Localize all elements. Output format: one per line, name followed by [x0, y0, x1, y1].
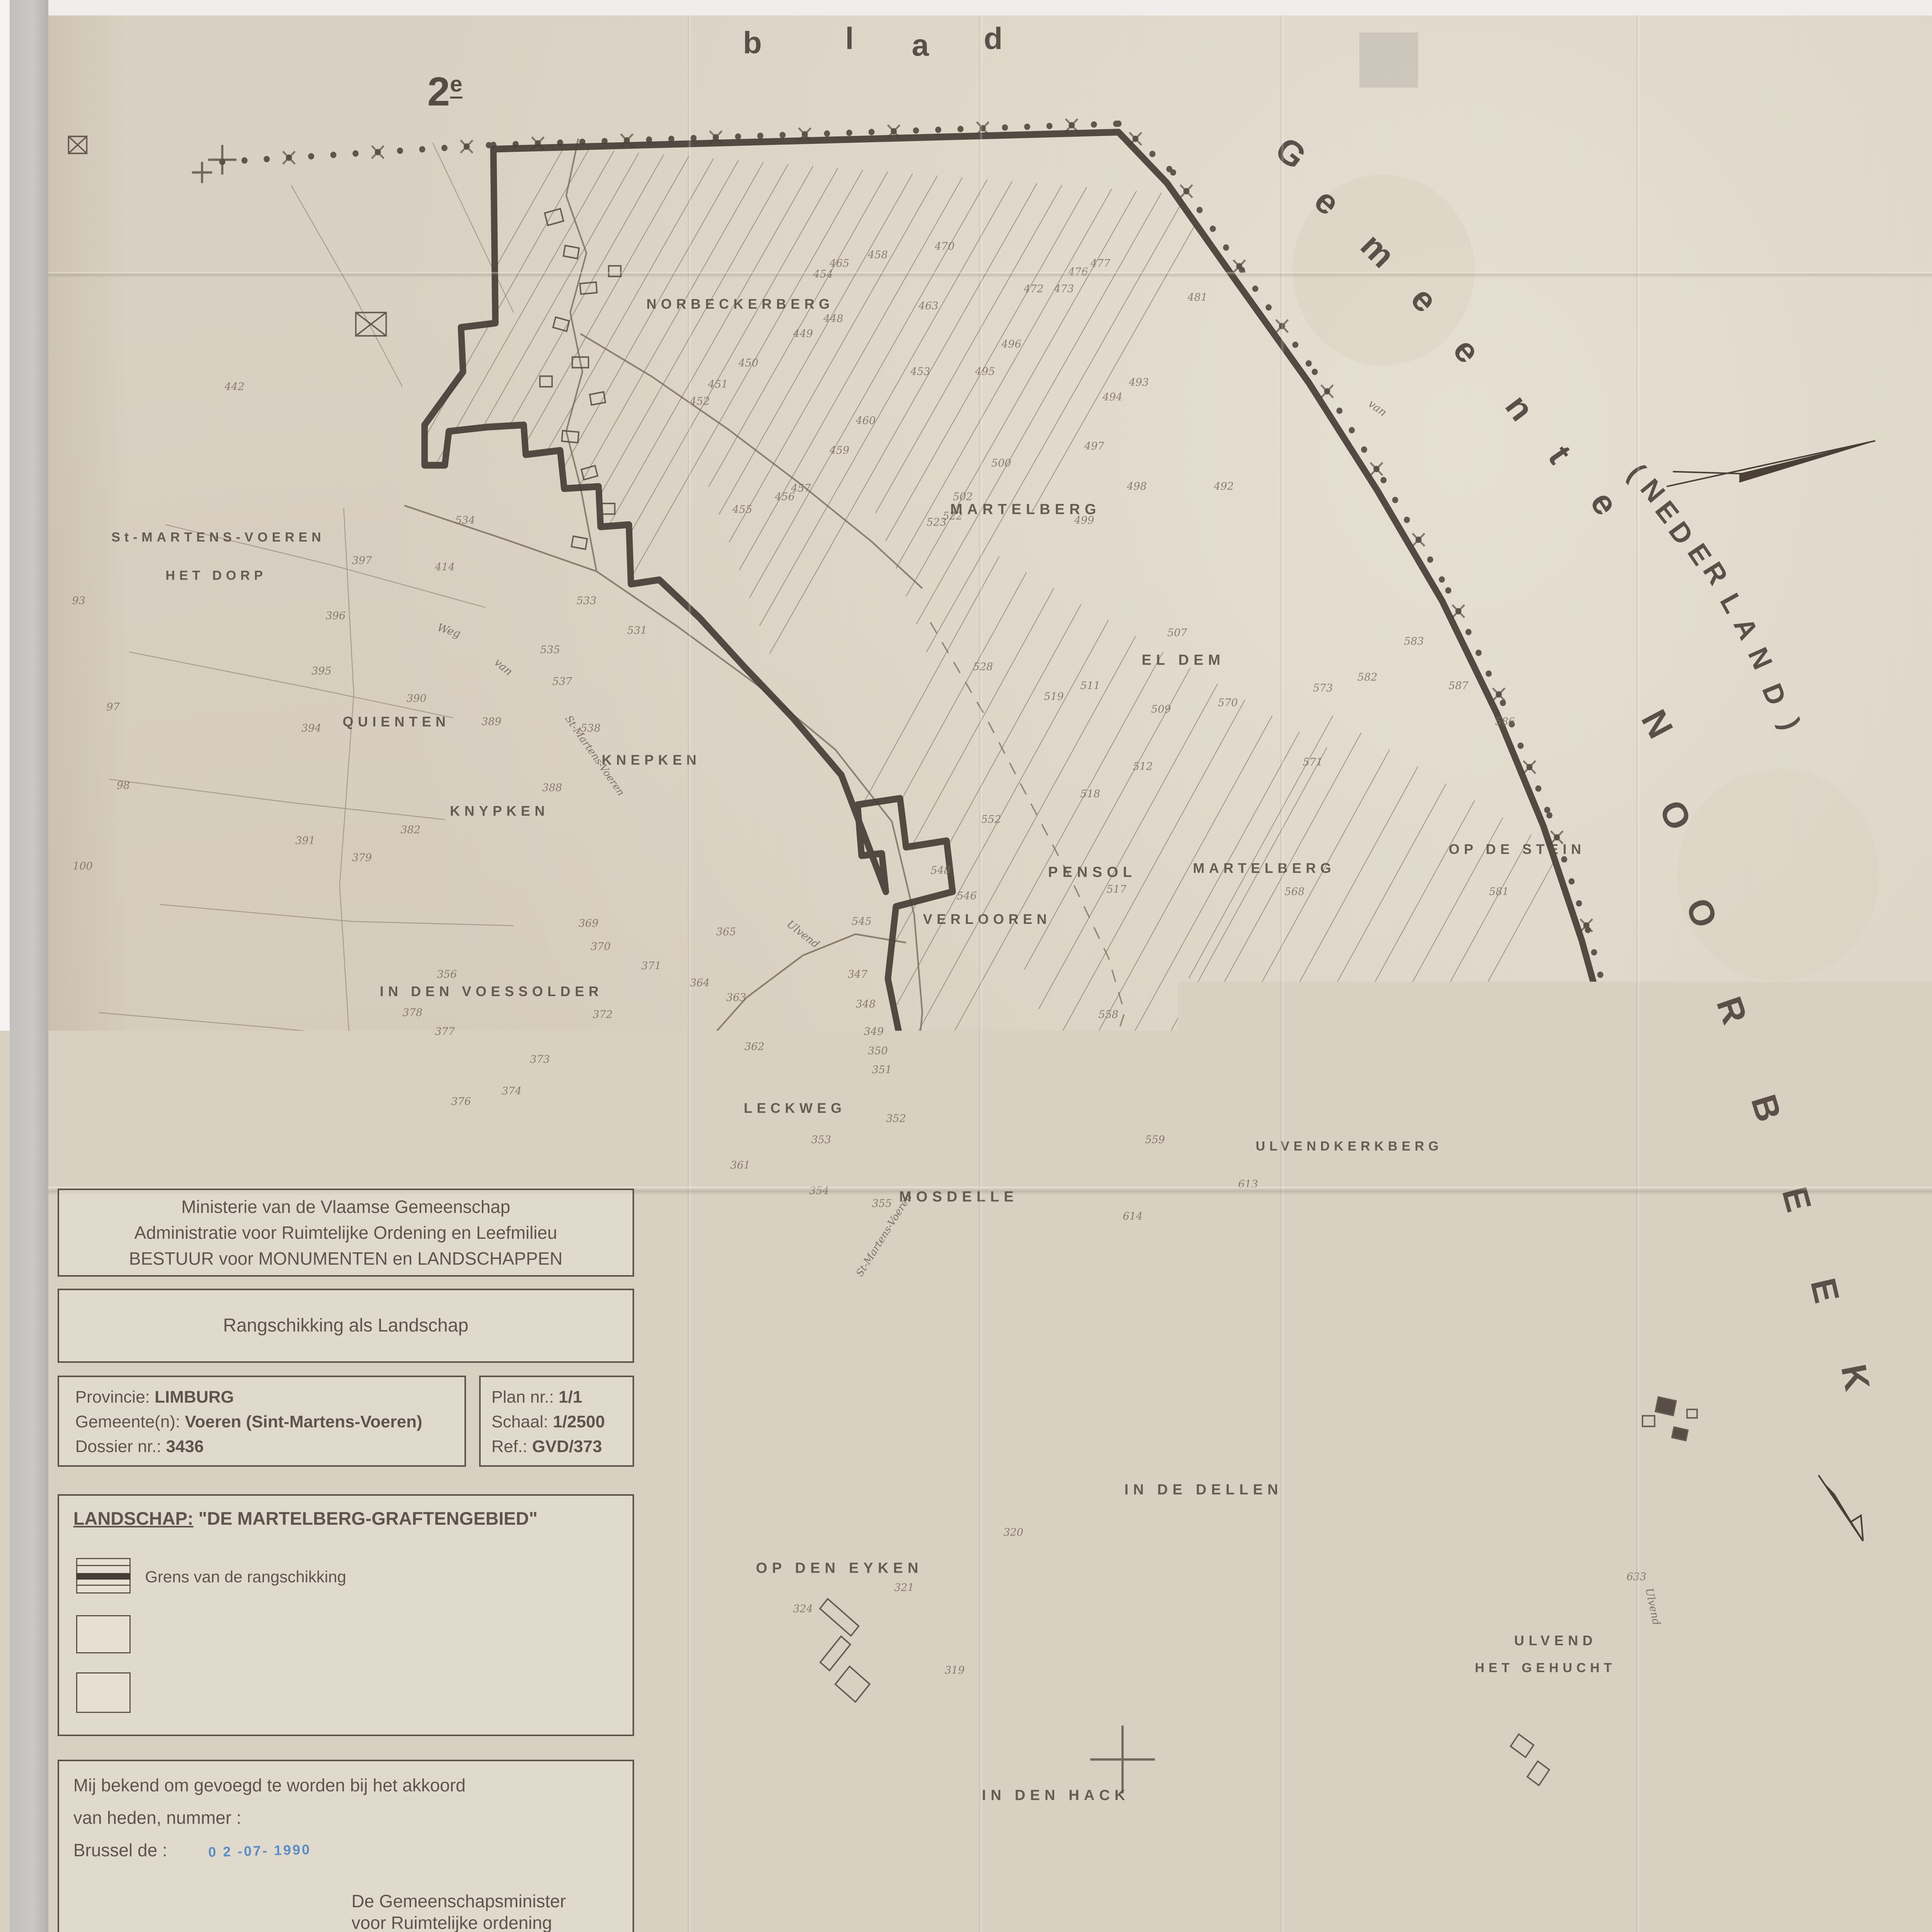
parcel-number: 100	[73, 860, 93, 872]
parcel-number: 630	[1436, 1609, 1456, 1621]
place-name-label: IN DEN VOESSOLDER	[380, 983, 603, 1000]
neighbor-sheet-ordinal-bottom: 1e	[1418, 1830, 1455, 1876]
place-name-label: ULVEND	[1514, 1633, 1597, 1649]
parcel-number: 496	[1002, 338, 1022, 350]
scan-edge-left	[10, 0, 48, 1932]
parcel-number: 546	[957, 890, 977, 902]
minister-line1: De Gemeenschapsminister	[352, 1891, 566, 1912]
parcel-number: 378	[403, 1007, 423, 1019]
parcel-number: 562	[1250, 1039, 1270, 1051]
parcel-number: 351	[872, 1064, 892, 1076]
north-arrow-pen-mark	[1667, 441, 1875, 486]
parcel-number: 627	[1454, 1539, 1475, 1551]
parcel-number: 629	[1471, 1605, 1491, 1617]
parcel-number: 545	[852, 915, 872, 927]
parcel-number: 593	[1598, 1026, 1618, 1038]
parcel-number: 587	[1449, 680, 1469, 692]
empty-symbol-swatch	[76, 1615, 131, 1653]
place-name-label: SCANTEN	[1458, 1030, 1556, 1046]
legend-province-box: Provincie: LIMBURG Gemeente(n): Voeren (…	[58, 1376, 466, 1467]
parcel-number: 534	[455, 514, 475, 526]
parcel-number: 356	[437, 968, 457, 980]
parcel-number: 632	[1485, 1698, 1505, 1710]
parcel-number: 507	[1167, 627, 1187, 639]
neighbor-sheet-letter: a	[912, 27, 929, 63]
parcel-number: 453	[910, 366, 930, 378]
parcel-number: 552	[981, 814, 1001, 826]
parcel-number: 452	[690, 396, 710, 408]
parcel-number: 354	[809, 1185, 829, 1197]
legend-plan-box: Plan nr.: 1/1 Schaal: 1/2500 Ref.: GVD/3…	[479, 1376, 634, 1467]
parcel-number: 602	[1362, 1100, 1382, 1112]
sheet-title-line1: VOEREN 1eAfd	[1562, 1929, 1880, 1932]
parcel-number: 601	[1396, 1079, 1416, 1091]
parcel-number: 533	[577, 595, 597, 607]
plan-row: Plan nr.: 1/1	[492, 1388, 582, 1407]
parcel-number: 472	[1024, 283, 1044, 295]
legend-title-box: Rangschikking als Landschap	[58, 1289, 634, 1363]
parcel-number: 350	[868, 1045, 888, 1057]
parcel-number: 518	[1080, 788, 1100, 800]
parcel-number: 373	[530, 1053, 550, 1065]
parcel-number: 597	[1511, 1075, 1531, 1087]
place-name-label: VERLOOREN	[923, 911, 1051, 927]
neighbor-sheet-letter: b	[743, 25, 762, 61]
place-name-label: IN DEN HACK	[982, 1787, 1130, 1804]
tape-patch	[1359, 32, 1418, 88]
place-name-label: EL DEM	[1142, 652, 1225, 669]
place-name-label: KNYPKEN	[450, 803, 549, 819]
parcel-number: 363	[726, 992, 747, 1004]
parcel-number: 455	[732, 504, 752, 516]
place-name-label: BECKARS	[1197, 1051, 1303, 1068]
paper-stain	[1677, 769, 1879, 981]
parcel-number: 519	[1044, 690, 1064, 702]
parcel-number: 633	[1626, 1571, 1646, 1583]
parcel-number: 535	[540, 644, 560, 656]
parcel-number: 631	[1341, 1732, 1361, 1744]
parcel-number: 611	[1282, 1104, 1303, 1116]
note-line2: van heden, nummer :	[73, 1807, 241, 1828]
parcel-number: 370	[591, 941, 611, 953]
parcel-number: 573	[1313, 682, 1333, 694]
parcel-number: 570	[1218, 697, 1238, 709]
ministry-line3: BESTUUR voor MONUMENTEN en LANDSCHAPPEN	[129, 1246, 563, 1272]
place-name-label: MARTELBERG	[1193, 860, 1335, 876]
parcel-number: 318	[925, 1802, 945, 1814]
parcel-number: 492	[1214, 480, 1234, 492]
date-stamp: 0 2 -07- 1990	[208, 1842, 311, 1861]
parcel-number: 494	[1102, 391, 1122, 403]
parcel-number: 512	[1133, 760, 1153, 772]
parcel-number: 362	[745, 1041, 765, 1053]
boundary-symbol-bar	[76, 1573, 131, 1580]
parcel-number: 583	[1404, 635, 1424, 647]
ministry-line2: Administratie voor Ruimtelijke Ordening …	[134, 1220, 557, 1246]
boundary-symbol-caption: Grens van de rangschikking	[145, 1568, 346, 1586]
neighbor-sheet-ordinal-top: 2e	[427, 69, 463, 115]
parcel-number: 477	[1090, 258, 1111, 270]
parcel-number: 561	[1210, 1089, 1230, 1101]
parcel-number: 414	[435, 561, 455, 573]
parcel-number: 364	[690, 977, 710, 989]
empty-symbol-swatch	[76, 1672, 131, 1713]
parcel-number: 449	[793, 328, 813, 340]
parcel-number: 379	[352, 852, 372, 864]
scan-edge-top	[0, 0, 1932, 15]
parcel-number: 626	[1367, 1482, 1388, 1494]
parcel-number: 391	[295, 835, 315, 847]
parcel-number: 500	[991, 457, 1011, 469]
parcel-number: 528	[973, 661, 993, 673]
ref-row: Ref.: GVD/373	[492, 1437, 602, 1456]
parcel-number: 625	[1376, 1543, 1396, 1555]
provincie-row: Provincie: LIMBURG	[75, 1388, 234, 1407]
parcel-number: 369	[578, 918, 599, 930]
place-name-label: OP DEN EYKEN	[756, 1560, 923, 1577]
parcel-number: 571	[1303, 756, 1323, 768]
parcel-number: 389	[481, 716, 502, 728]
parcel-number: 495	[975, 366, 995, 378]
scanned-map-page: blad blad Gemeente (NEDERLAND) NOORBEEK …	[0, 0, 1932, 1932]
parcel-number: 458	[868, 249, 888, 261]
parcel-number: 320	[1003, 1526, 1024, 1538]
south-arrow-pen-mark	[1818, 1475, 1863, 1541]
parcel-number: 448	[823, 313, 844, 325]
place-name-label: ULVENDKERKBERG	[1256, 1139, 1443, 1154]
parcel-number: 456	[775, 491, 795, 503]
parcel-number: 388	[542, 782, 562, 794]
gemeente-row: Gemeente(n): Voeren (Sint-Martens-Voeren…	[75, 1412, 422, 1432]
parcel-number: 377	[435, 1026, 455, 1038]
parcel-number: 349	[864, 1026, 884, 1038]
parcel-number: 624	[1384, 1582, 1404, 1594]
parcel-number: 394	[301, 722, 321, 734]
place-name-label: HET DORP	[165, 568, 267, 583]
parcel-number: 365	[716, 926, 736, 938]
neighbor-sheet-letter: d	[984, 21, 1003, 56]
place-name-label: MOSDELLE	[899, 1189, 1018, 1206]
parcel-number: 382	[401, 824, 421, 836]
parcel-number: 397	[352, 555, 372, 567]
parcel-number: 511	[1080, 680, 1100, 692]
parcel-number: 459	[830, 444, 850, 456]
parcel-number: 498	[1127, 480, 1147, 492]
parcel-number: 564	[1380, 1002, 1400, 1014]
parcel-number: 509	[1151, 703, 1171, 715]
parcel-number: 497	[1084, 440, 1104, 452]
place-name-label: St-MARTENS-VOEREN	[111, 530, 325, 545]
parcel-number: 558	[1099, 1009, 1119, 1021]
parcel-number: 371	[641, 960, 662, 972]
legend-landschap-box: LANDSCHAP: "DE MARTELBERG-GRAFTENGEBIED"…	[58, 1494, 634, 1736]
parcel-number: 321	[894, 1582, 914, 1594]
legend-approval-box: Mij bekend om gevoegd te worden bij het …	[58, 1760, 634, 1932]
parcel-number: 582	[1357, 672, 1378, 684]
landschap-title: LANDSCHAP: "DE MARTELBERG-GRAFTENGEBIED"	[73, 1508, 537, 1529]
parcel-number: 609	[1386, 1410, 1406, 1422]
parcel-number: 353	[811, 1134, 831, 1146]
parcel-number: 581	[1489, 886, 1509, 898]
parcel-number: 596	[1604, 1096, 1624, 1108]
place-name-label: LECKWEG	[744, 1100, 846, 1116]
parcel-number: 450	[738, 357, 759, 369]
place-name-label: MARTELBERG	[950, 502, 1101, 518]
legend-header-box: Ministerie van de Vlaamse Gemeenschap Ad…	[58, 1189, 634, 1277]
parcel-number: 613	[1238, 1179, 1258, 1190]
schaal-row: Schaal: 1/2500	[492, 1412, 605, 1432]
parcel-number: 493	[1129, 376, 1149, 388]
parcel-number: 603	[1410, 1221, 1430, 1233]
note-line3: Brussel de :	[73, 1840, 167, 1861]
parcel-number: 517	[1107, 884, 1127, 896]
place-name-label: KNEPKEN	[602, 752, 701, 768]
parcel-number: 390	[406, 693, 427, 705]
parcel-number: 93	[72, 595, 85, 607]
parcel-number: 355	[872, 1197, 892, 1209]
boundary-symbol-swatch	[76, 1558, 131, 1594]
scan-edge-left-white	[0, 0, 10, 1932]
parcel-number: 348	[856, 998, 876, 1010]
parcel-number: 531	[627, 625, 647, 637]
parcel-number: 463	[918, 300, 939, 312]
place-name-label: HET GEHUCHT	[1475, 1661, 1616, 1676]
parcel-number: 451	[708, 379, 728, 391]
parcel-number: 481	[1187, 292, 1207, 304]
parcel-number: 374	[502, 1085, 522, 1097]
parcel-number: 97	[107, 701, 120, 713]
parcel-number: 548	[930, 864, 951, 876]
parcel-number: 614	[1123, 1210, 1143, 1222]
parcel-number: 454	[813, 268, 833, 280]
place-name-label: PENSOL	[1048, 864, 1136, 881]
parcel-number: 352	[886, 1113, 906, 1125]
parcel-number: 319	[945, 1664, 965, 1676]
parcel-number: 599	[1446, 1072, 1466, 1084]
parcel-number: 396	[326, 610, 346, 622]
parcel-number: 372	[593, 1009, 613, 1021]
parcel-number: 537	[552, 676, 572, 688]
neighbor-sheet-letter: l	[845, 21, 854, 56]
parcel-number: 460	[856, 415, 876, 427]
place-name-label: QUIENTEN	[343, 714, 450, 730]
parcel-number: 473	[1054, 283, 1074, 295]
parcel-number: 560	[1184, 1104, 1204, 1116]
section-letter: B	[1113, 1929, 1140, 1932]
parcel-number: 465	[830, 258, 850, 270]
parcel-number: 324	[793, 1603, 813, 1615]
place-name-label: OP DE STEIN	[1449, 841, 1585, 857]
parcel-number: 395	[311, 665, 332, 677]
note-line1: Mij bekend om gevoegd te worden bij het …	[73, 1775, 466, 1796]
place-name-label: NORBECKERBERG	[646, 296, 834, 312]
minister-line2: voor Ruimtelijke ordening	[352, 1912, 552, 1932]
parcel-number: 559	[1145, 1134, 1165, 1146]
parcel-number: 98	[117, 780, 130, 792]
parcel-number: 604	[1459, 1180, 1479, 1192]
parcel-number: 628	[1485, 1567, 1505, 1579]
ministry-line1: Ministerie van de Vlaamse Gemeenschap	[181, 1194, 510, 1220]
parcel-number: 470	[935, 241, 955, 253]
place-name-label: IN DE DELLEN	[1124, 1482, 1283, 1498]
map-paper-sheet: blad blad Gemeente (NEDERLAND) NOORBEEK …	[48, 15, 1932, 1932]
parcel-number: 617	[1175, 1431, 1196, 1443]
parcel-number: 347	[848, 968, 868, 980]
parcel-number: 568	[1285, 886, 1305, 898]
parcel-number: 476	[1068, 266, 1088, 278]
legend-title: Rangschikking als Landschap	[223, 1315, 468, 1336]
parcel-number: 361	[730, 1160, 750, 1172]
parcel-number: 586	[1495, 716, 1515, 728]
parcel-number: 442	[224, 381, 245, 393]
parcel-number: 641	[1612, 1214, 1633, 1226]
dossier-row: Dossier nr.: 3436	[75, 1437, 204, 1456]
parcel-number: 523	[927, 517, 947, 529]
parcel-number: 376	[451, 1096, 471, 1108]
